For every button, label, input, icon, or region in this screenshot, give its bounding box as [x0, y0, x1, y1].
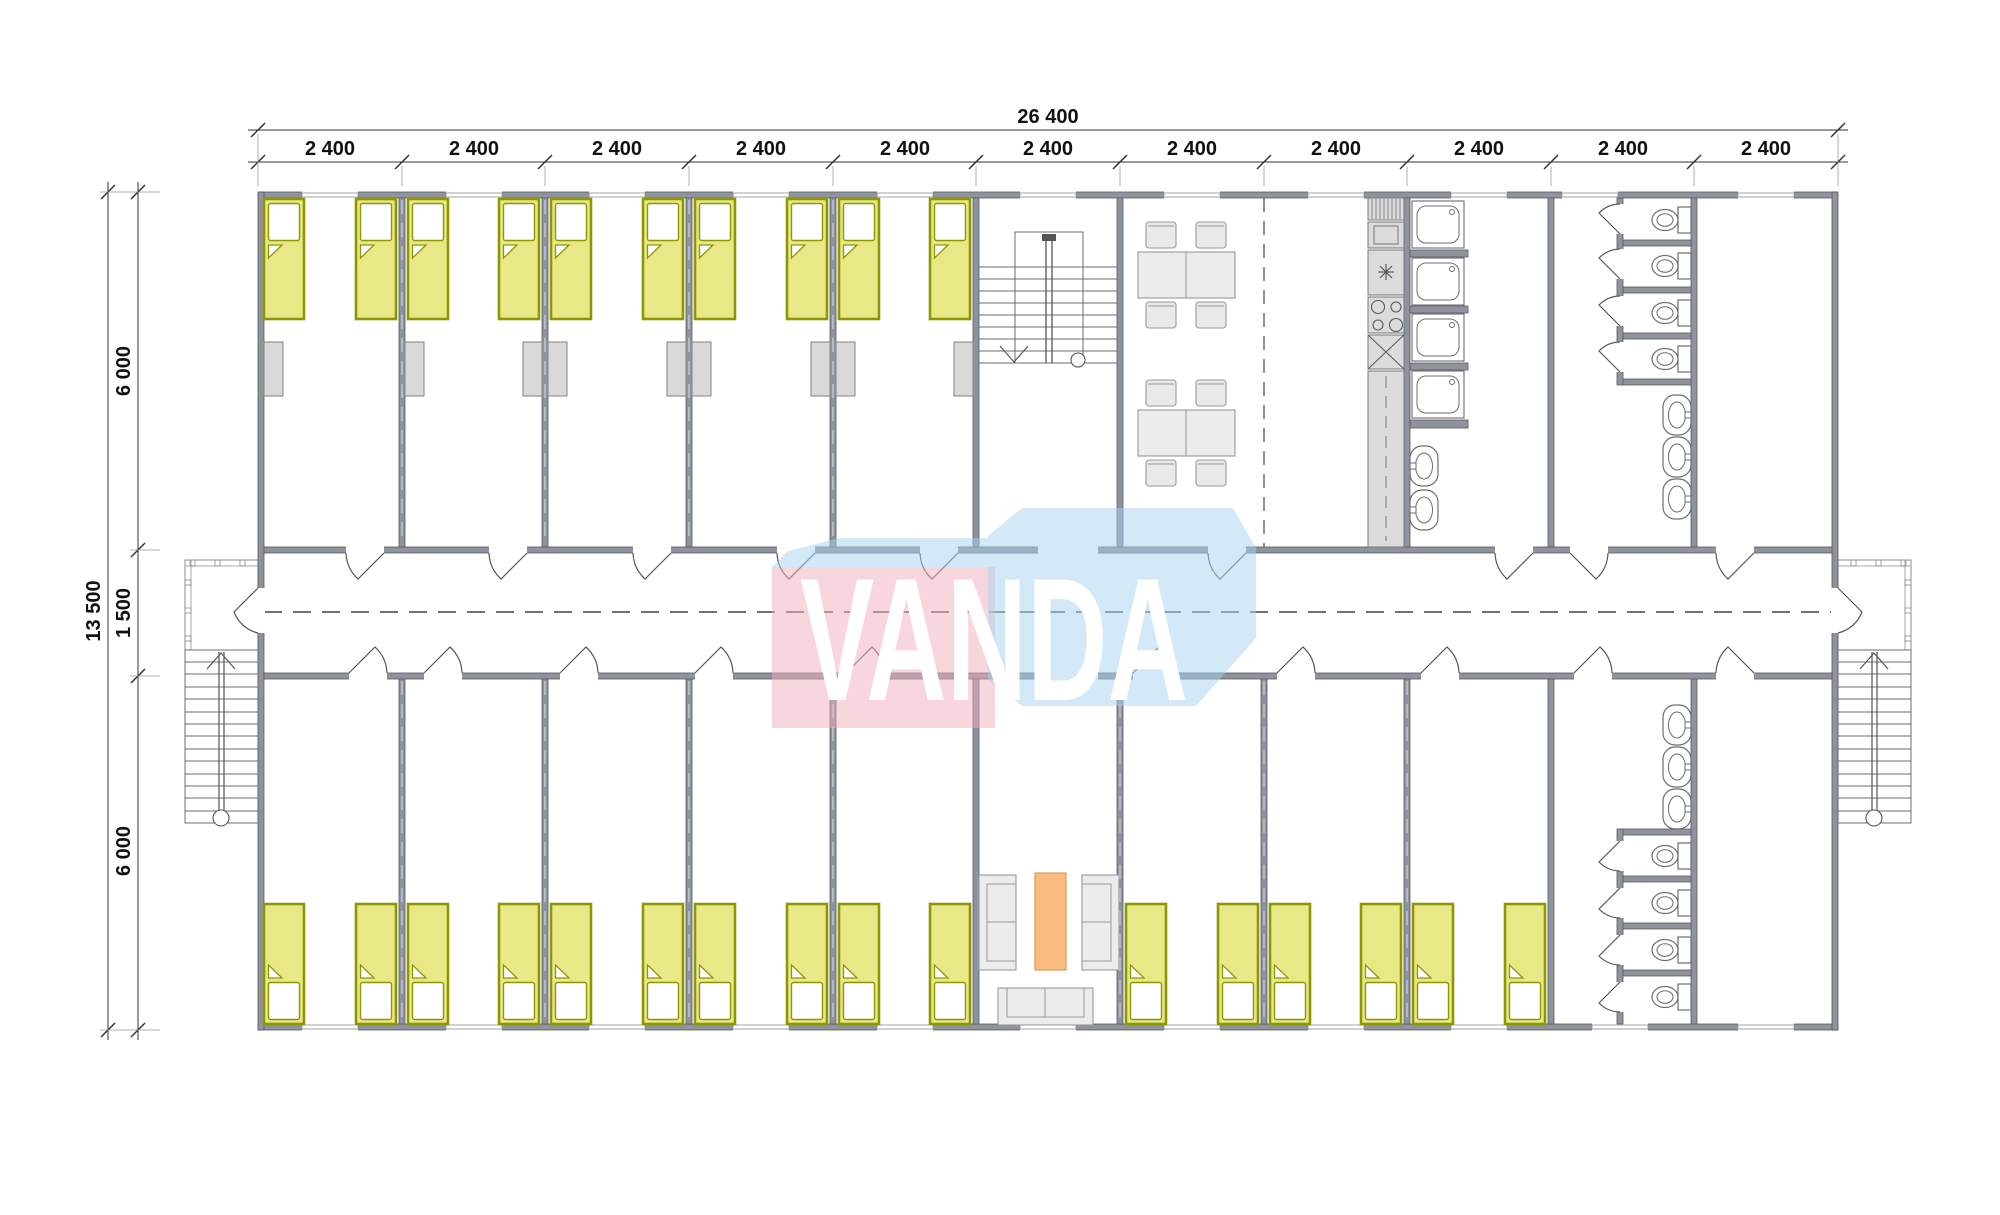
door [1495, 546, 1533, 579]
chair [1196, 302, 1226, 328]
bed [643, 904, 683, 1024]
dim-seg: 6 000 [113, 346, 135, 396]
chair [1146, 460, 1176, 486]
bed [408, 199, 448, 319]
dining-set [1138, 222, 1235, 328]
locker [523, 342, 542, 396]
door [1574, 647, 1612, 680]
chair [1196, 380, 1226, 406]
bed [1218, 904, 1258, 1024]
chair [1146, 380, 1176, 406]
sofa [998, 988, 1093, 1025]
door [1421, 647, 1459, 680]
locker [811, 342, 830, 396]
dim-bay: 2 400 [880, 138, 930, 160]
dim-bay: 2 400 [1454, 138, 1504, 160]
door [633, 546, 671, 579]
bed [839, 904, 879, 1024]
shower [1412, 258, 1464, 305]
bed [930, 904, 970, 1024]
door [1716, 647, 1754, 680]
toilet [1652, 984, 1691, 1010]
door [695, 647, 733, 680]
dim-bay: 2 400 [1023, 138, 1073, 160]
locker [264, 342, 283, 396]
external-staircase-right [1838, 560, 1911, 826]
locker [692, 342, 711, 396]
stair-start-marker [1866, 810, 1882, 826]
toilet [1652, 890, 1691, 916]
bed [787, 904, 827, 1024]
dim-bay: 2 400 [1167, 138, 1217, 160]
locker [548, 342, 567, 396]
bed [1126, 904, 1166, 1024]
locker [667, 342, 686, 396]
bed [839, 199, 879, 319]
locker [954, 342, 973, 396]
stair-landing [1838, 560, 1911, 650]
door [349, 647, 387, 680]
bed [695, 199, 735, 319]
bed [695, 904, 735, 1024]
lounge [979, 873, 1119, 1025]
wash-basin [1663, 437, 1691, 477]
stairs [185, 650, 258, 826]
bed [499, 904, 539, 1024]
toilet [1652, 207, 1691, 233]
toilet [1652, 843, 1691, 869]
dim-total-width: 26 400 [1017, 106, 1078, 128]
bed [408, 904, 448, 1024]
kitchen-rack [1368, 198, 1404, 220]
light-symbol [1378, 264, 1394, 280]
floor-plan: 26 400 2 400 2 400 2 400 2 400 2 400 2 4… [0, 0, 2000, 1215]
wash-basin [1663, 395, 1691, 435]
floor-plan-page: 26 400 2 400 2 400 2 400 2 400 2 400 2 4… [0, 0, 2000, 1215]
wash-basin [1663, 789, 1691, 829]
stair-direction-arrow [1000, 346, 1028, 362]
bed [356, 904, 396, 1024]
bed [930, 199, 970, 319]
dim-seg: 1 500 [113, 588, 135, 638]
door [346, 546, 384, 579]
door [1716, 546, 1754, 579]
kitchen [1368, 198, 1404, 547]
chair [1146, 222, 1176, 248]
dim-bay: 2 400 [449, 138, 499, 160]
watermark: VANDA [772, 508, 1256, 738]
dim-seg: 6 000 [113, 826, 135, 876]
bed [1413, 904, 1453, 1024]
door [1277, 647, 1315, 680]
stairs [1838, 650, 1911, 826]
bed [264, 904, 304, 1024]
dimension-top: 26 400 2 400 2 400 2 400 2 400 2 400 2 4… [248, 106, 1848, 186]
locker [836, 342, 855, 396]
dining-set [1138, 380, 1235, 486]
dim-bay: 2 400 [1598, 138, 1648, 160]
locker [405, 342, 424, 396]
bed [1361, 904, 1401, 1024]
dimension-left: 13 500 6 000 1 500 6 000 [83, 182, 160, 1040]
sofa [979, 875, 1016, 970]
toilet [1652, 346, 1691, 372]
stair-landing [185, 560, 258, 650]
stair-start-marker [213, 810, 229, 826]
chair [1146, 302, 1176, 328]
bed [499, 199, 539, 319]
wash-basin [1663, 705, 1691, 745]
internal-staircase [979, 232, 1117, 367]
bed [787, 199, 827, 319]
sofa [1082, 875, 1119, 970]
chair [1196, 222, 1226, 248]
shower [1412, 201, 1464, 248]
door [560, 647, 598, 680]
bed [264, 199, 304, 319]
bed [1270, 904, 1310, 1024]
door [1570, 546, 1608, 579]
dim-bay: 2 400 [592, 138, 642, 160]
stair-start-marker [1071, 353, 1085, 367]
shower [1412, 371, 1464, 418]
bed [1505, 904, 1545, 1024]
dim-bay: 2 400 [1311, 138, 1361, 160]
toilet [1652, 300, 1691, 326]
toilet-room-top [1599, 198, 1691, 519]
bed [643, 199, 683, 319]
door [489, 546, 527, 579]
watermark-text: VANDA [800, 543, 1188, 738]
dim-bay: 2 400 [305, 138, 355, 160]
washroom [1410, 201, 1468, 530]
bed [551, 904, 591, 1024]
toilet-room-bottom [1599, 705, 1691, 1024]
dining-area [1138, 198, 1264, 547]
door [424, 647, 462, 680]
shower [1412, 314, 1464, 361]
bed [551, 199, 591, 319]
bed [356, 199, 396, 319]
bedrooms-bottom [264, 904, 1545, 1024]
dim-total-height: 13 500 [83, 580, 105, 641]
wash-basin [1663, 747, 1691, 787]
wash-basin [1410, 446, 1438, 486]
chair [1196, 460, 1226, 486]
external-staircase-left [185, 560, 258, 826]
dim-bay: 2 400 [736, 138, 786, 160]
toilet [1652, 253, 1691, 279]
bedrooms-top [264, 199, 973, 396]
toilet [1652, 937, 1691, 963]
wash-basin [1410, 490, 1438, 530]
dim-bay: 2 400 [1741, 138, 1791, 160]
lounge-table [1035, 873, 1066, 970]
wash-basin [1663, 479, 1691, 519]
